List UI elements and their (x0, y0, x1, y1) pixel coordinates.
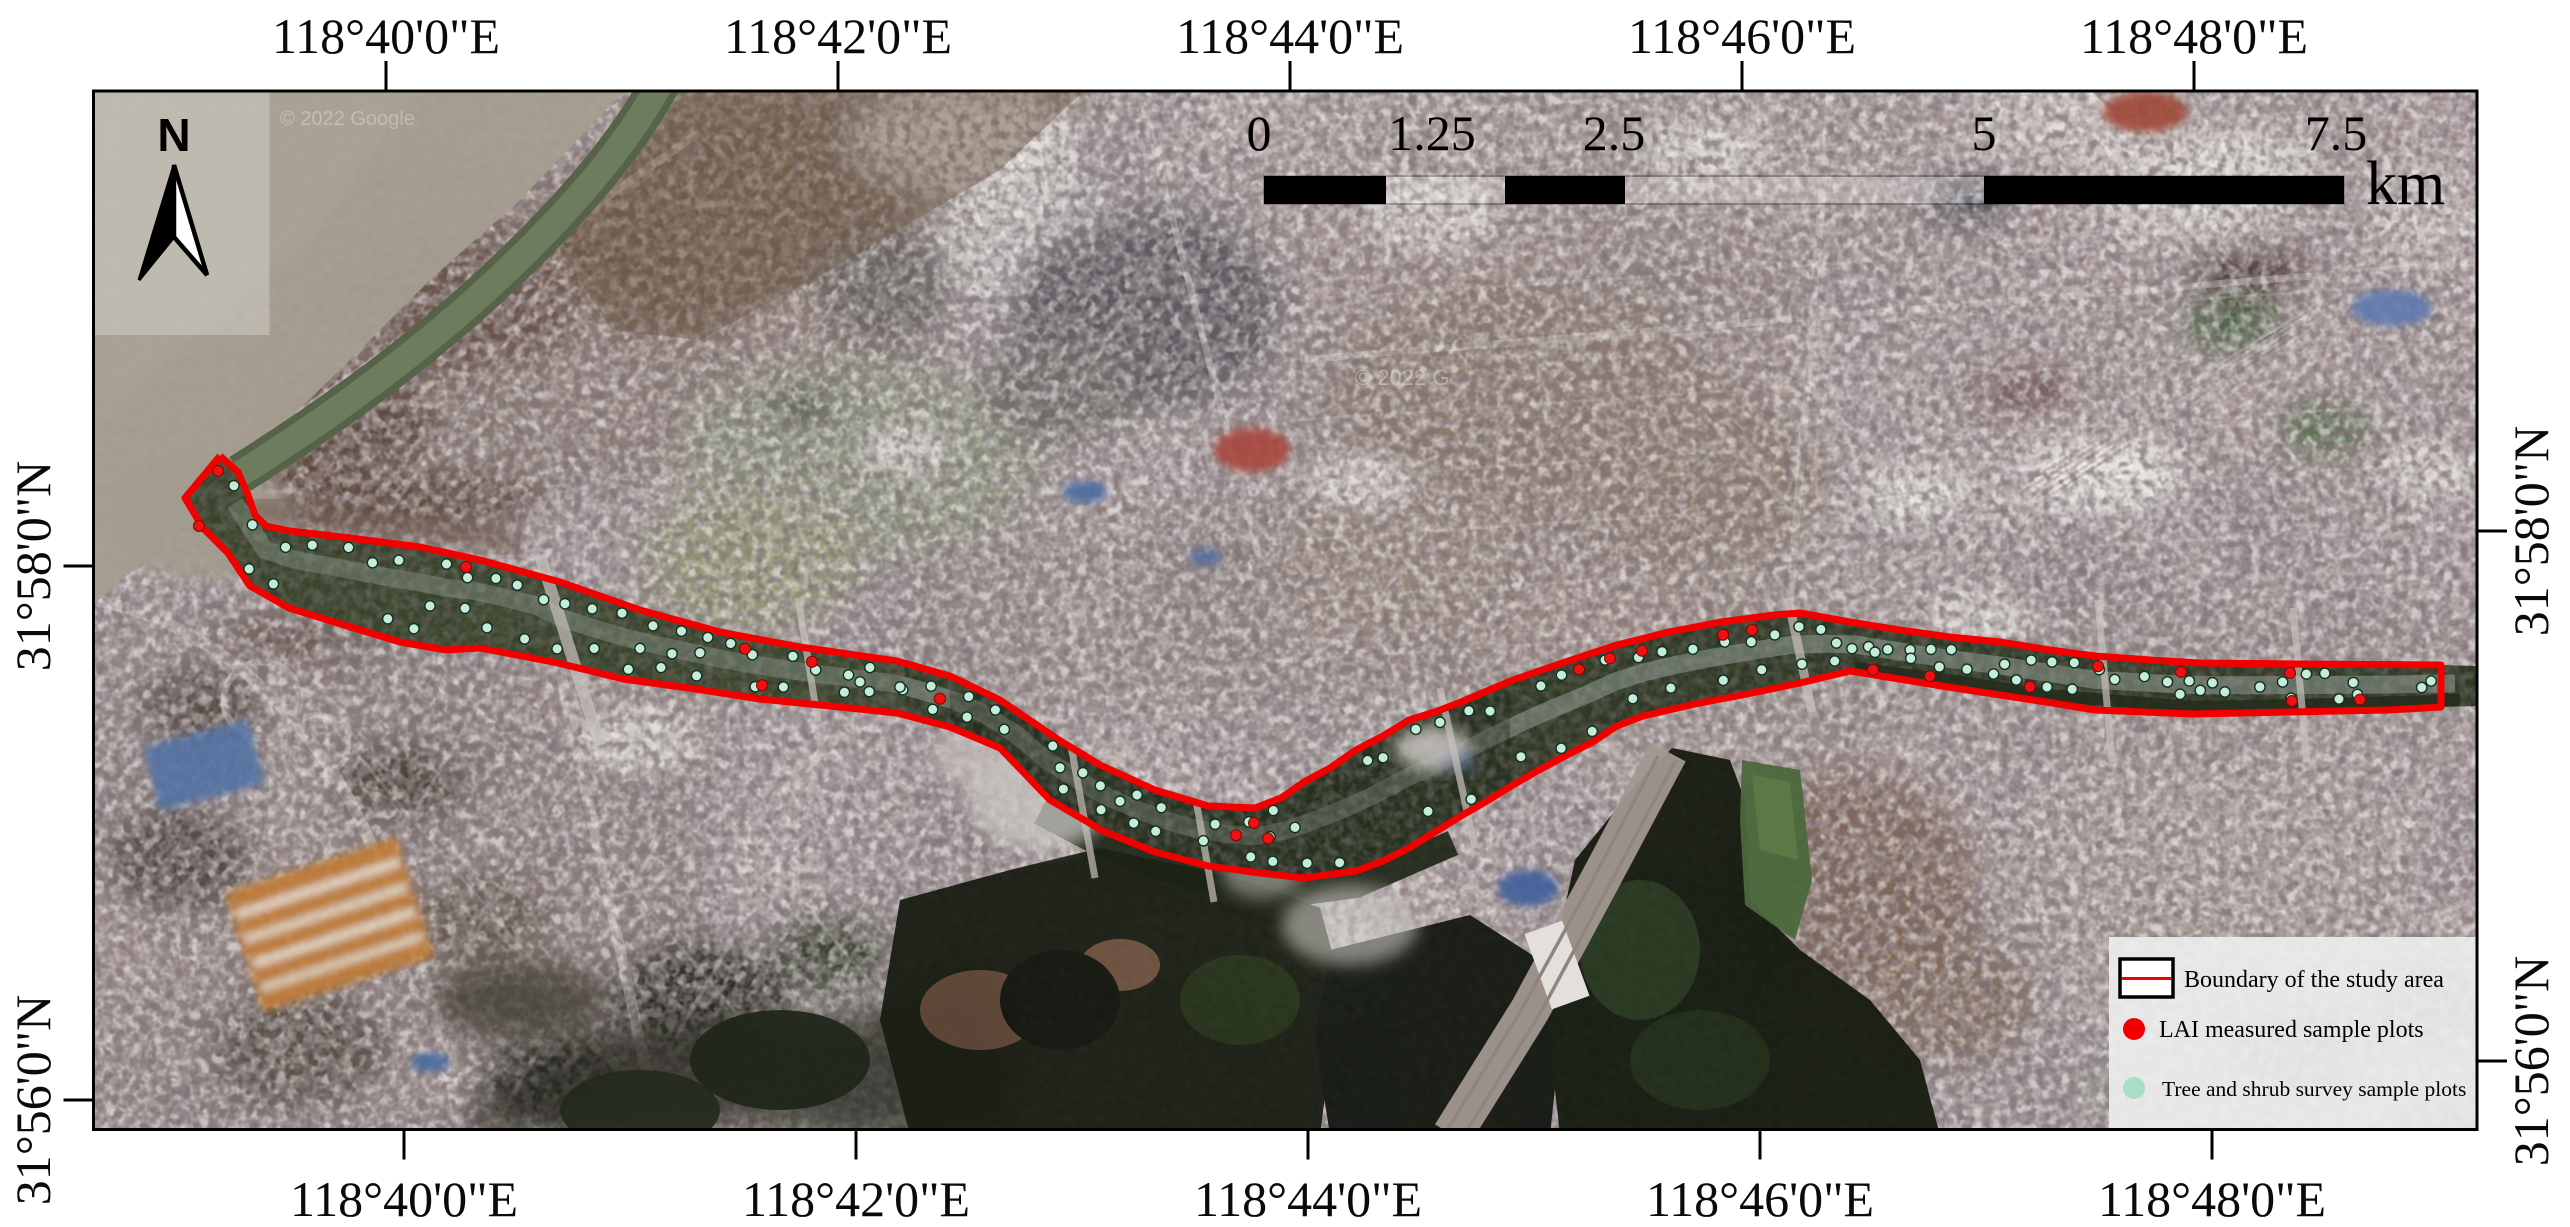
svg-text:km: km (2366, 150, 2445, 218)
svg-text:118°46'0"E: 118°46'0"E (1646, 1171, 1874, 1227)
svg-text:N: N (157, 109, 190, 161)
svg-text:118°44'0"E: 118°44'0"E (1176, 8, 1404, 64)
svg-text:7.5: 7.5 (2305, 105, 2368, 161)
svg-text:5: 5 (1972, 105, 1997, 161)
svg-text:118°46'0"E: 118°46'0"E (1628, 8, 1856, 64)
svg-text:LAI measured sample plots: LAI measured sample plots (2159, 1017, 2424, 1043)
svg-text:31°56'0"N: 31°56'0"N (2503, 956, 2559, 1167)
svg-text:© 2022 G: © 2022 G (1355, 365, 1450, 390)
svg-text:118°44'0"E: 118°44'0"E (1194, 1171, 1422, 1227)
svg-text:1.25: 1.25 (1388, 105, 1476, 161)
svg-text:0: 0 (1247, 105, 1272, 161)
svg-text:118°42'0"E: 118°42'0"E (724, 8, 952, 64)
svg-text:118°40'0"E: 118°40'0"E (290, 1171, 518, 1227)
svg-text:Boundary of the study area: Boundary of the study area (2184, 967, 2444, 993)
svg-text:118°42'0"E: 118°42'0"E (742, 1171, 970, 1227)
svg-text:31°58'0"N: 31°58'0"N (2503, 426, 2559, 637)
svg-text:31°58'0"N: 31°58'0"N (5, 461, 61, 672)
svg-text:118°40'0"E: 118°40'0"E (272, 8, 500, 64)
svg-text:© 2022 Google: © 2022 Google (280, 108, 415, 130)
svg-text:31°56'0"N: 31°56'0"N (5, 995, 61, 1206)
svg-text:2.5: 2.5 (1583, 105, 1646, 161)
svg-text:Tree and shrub survey sample p: Tree and shrub survey sample plots (2162, 1077, 2466, 1101)
svg-text:118°48'0"E: 118°48'0"E (2080, 8, 2308, 64)
svg-text:118°48'0"E: 118°48'0"E (2098, 1171, 2326, 1227)
